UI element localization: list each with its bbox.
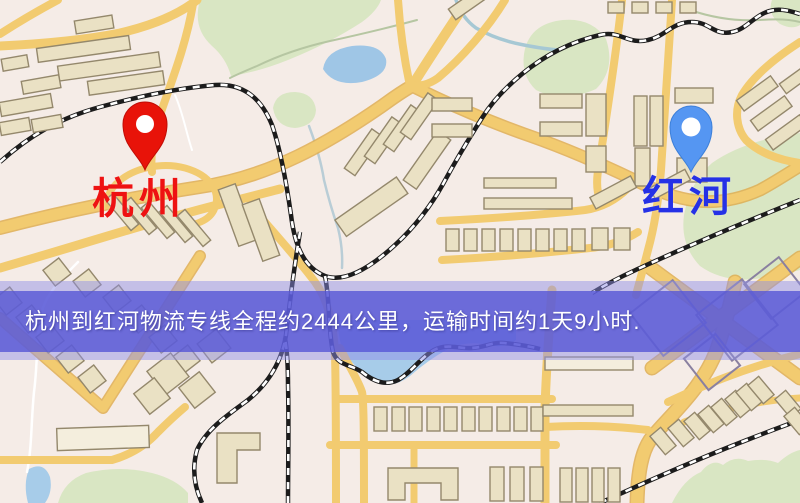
route-info-banner: 杭州到红河物流专线全程约2444公里，运输时间约1天9小时. xyxy=(0,281,800,360)
route-info-text: 杭州到红河物流专线全程约2444公里，运输时间约1天9小时. xyxy=(25,291,641,352)
map-image xyxy=(0,0,800,503)
destination-city-label: 红河 xyxy=(642,177,736,219)
route-map: 杭州 红河 杭州到红河物流专线全程约2444公里，运输时间约1天9小时. xyxy=(0,0,800,503)
origin-city-label: 杭州 xyxy=(92,179,186,221)
